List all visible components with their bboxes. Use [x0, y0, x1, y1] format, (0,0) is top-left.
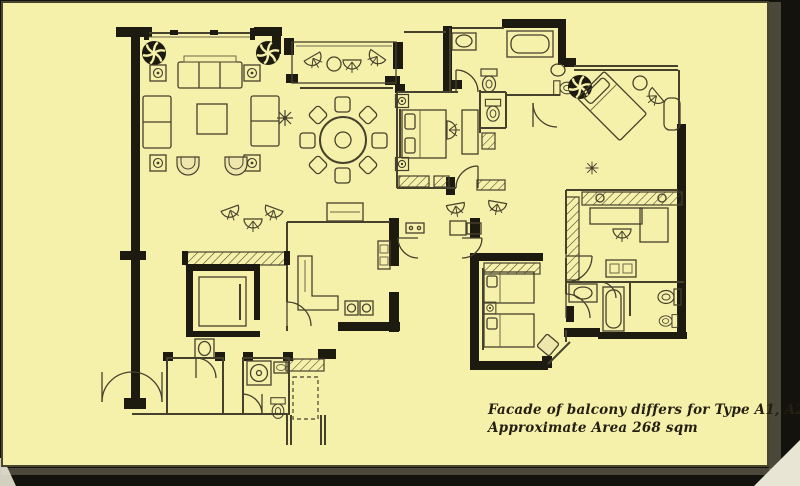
armchair-icon	[177, 157, 199, 175]
closet-icon	[399, 176, 429, 187]
closet-icon	[566, 197, 579, 280]
closet-icon	[482, 133, 495, 149]
paper-sheet	[2, 2, 768, 466]
armchair-icon	[225, 157, 247, 175]
closet-icon	[434, 176, 449, 187]
closet-icon	[477, 180, 505, 190]
ceiling-fan-icon	[256, 41, 280, 65]
closet-icon	[186, 252, 286, 265]
floor-plan-drawing: Facade of balcony differs for Type A1, A…	[0, 0, 800, 486]
planter-icon	[586, 162, 599, 175]
planter-icon	[277, 110, 293, 126]
caption-line-2: Approximate Area 268 sqm	[486, 420, 698, 436]
closet-icon	[582, 192, 682, 205]
floor-plan-page: Facade of balcony differs for Type A1, A…	[0, 0, 800, 486]
caption-line-1: Facade of balcony differs for Type A1, A…	[487, 402, 800, 418]
ceiling-fan-icon	[142, 41, 166, 65]
